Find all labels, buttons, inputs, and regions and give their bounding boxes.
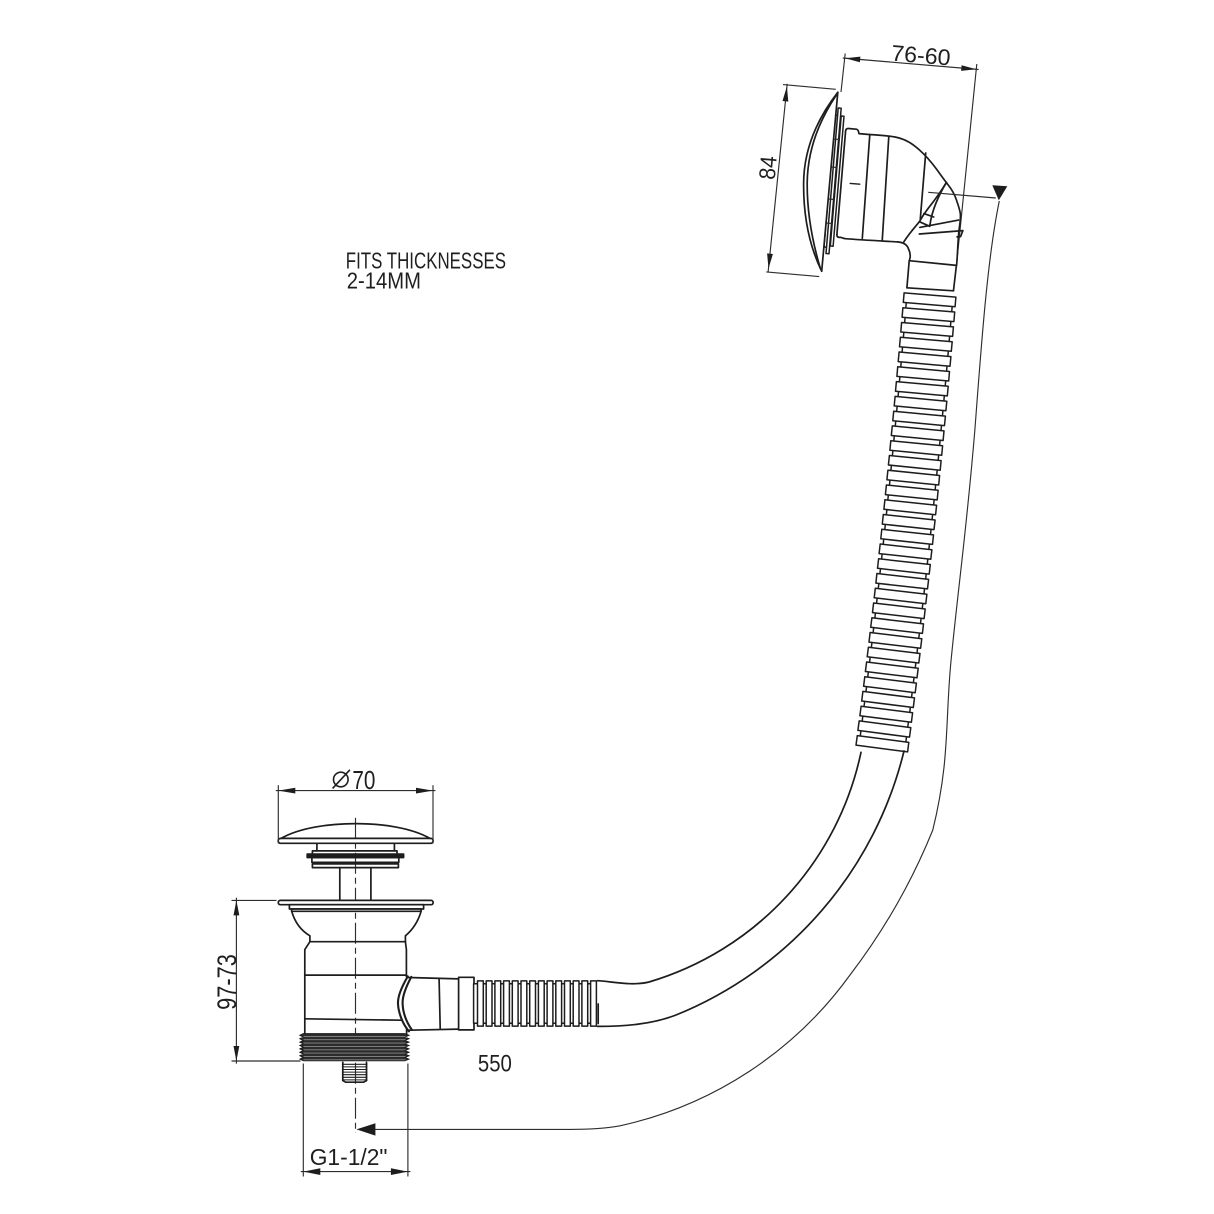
svg-text:70: 70 (352, 765, 375, 795)
svg-text:97-73: 97-73 (212, 954, 242, 1010)
svg-text:76-60: 76-60 (890, 41, 951, 71)
svg-text:G1-1/2": G1-1/2" (310, 1144, 388, 1170)
svg-text:550: 550 (478, 1050, 512, 1077)
svg-text:84: 84 (754, 155, 782, 181)
svg-text:2-14MM: 2-14MM (347, 267, 421, 293)
